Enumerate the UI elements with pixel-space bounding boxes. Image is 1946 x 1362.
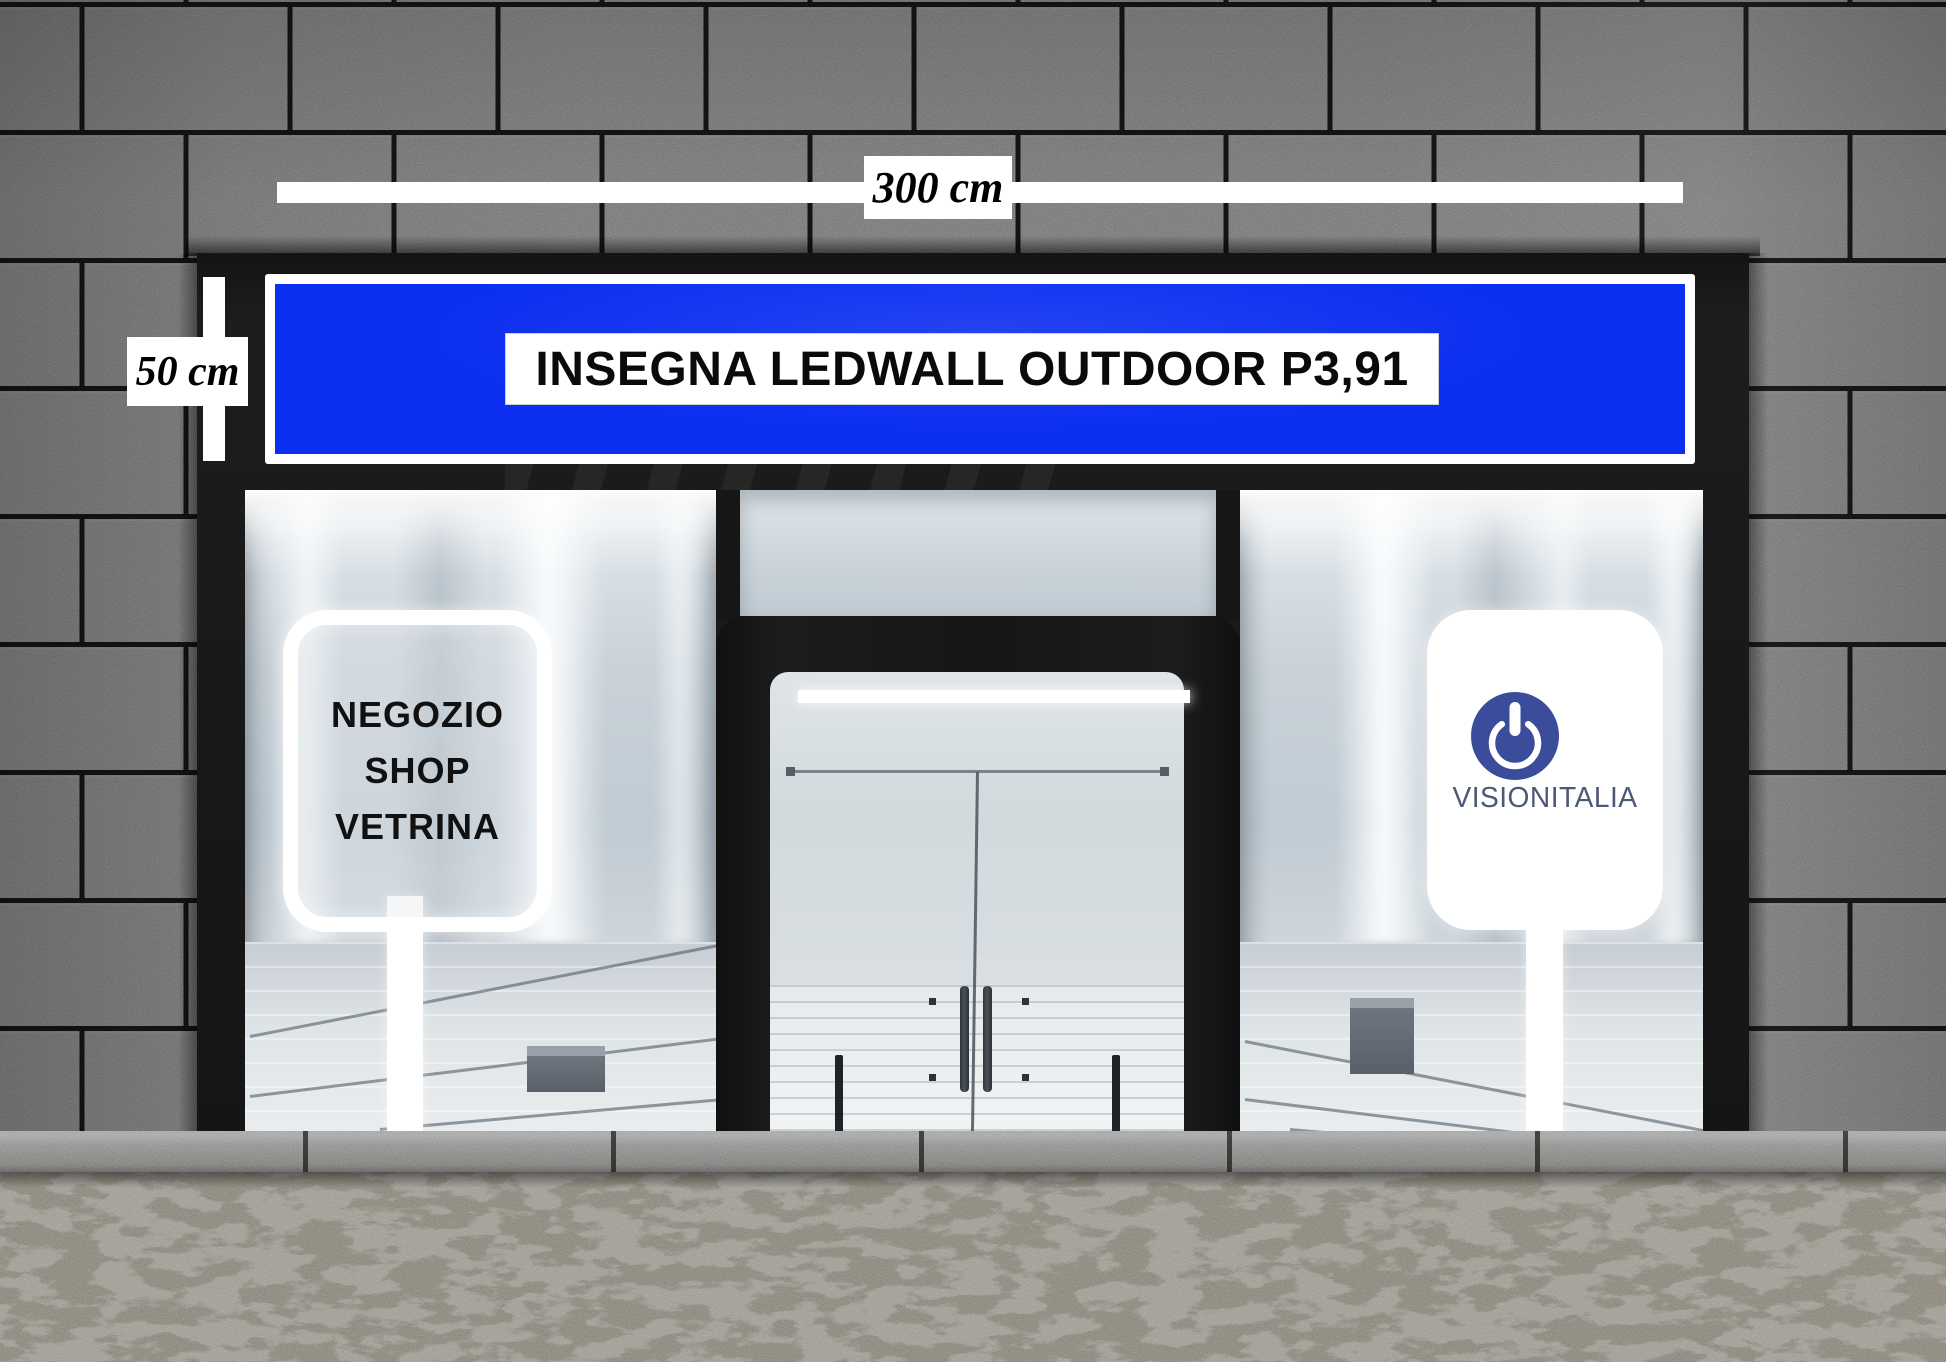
column-base [527, 1046, 605, 1092]
pavement-speckle [0, 1172, 1946, 1362]
handle-mount [1022, 1074, 1029, 1081]
sign-line-1: NEGOZIO [331, 687, 504, 743]
pavement-shadow [0, 1172, 1946, 1188]
ceiling-light-glow [1240, 490, 1703, 576]
handle-mount [929, 1074, 936, 1081]
sign-line-2: SHOP [364, 743, 470, 799]
window-mullion-right [1216, 490, 1240, 620]
facade-right-shadow [1749, 253, 1768, 1133]
column-base [1350, 998, 1414, 1074]
door-transom-glass [740, 490, 1216, 616]
glass-door-opening [770, 672, 1184, 1133]
right-sign-post [1526, 924, 1563, 1133]
door-rail-fitting [1160, 767, 1169, 776]
shop-window-sign: NEGOZIO SHOP VETRINA [283, 610, 552, 932]
ledwall-sign-label: INSEGNA LEDWALL OUTDOOR P3,91 [505, 333, 1439, 405]
door-stopper [835, 1055, 843, 1133]
window-mullion-left [716, 490, 740, 620]
brand-sign: VISIONITALIA [1427, 610, 1663, 930]
door-light-bar [798, 690, 1190, 703]
power-icon [1471, 692, 1559, 780]
ghost-lettering [505, 462, 1065, 492]
curb-speckle [0, 1131, 1946, 1173]
door-handle-left[interactable] [960, 986, 969, 1092]
ceiling-light-glow [245, 490, 716, 576]
width-measure-label: 300 cm [864, 156, 1012, 219]
handle-mount [1022, 998, 1029, 1005]
storefront-mockup: INSEGNA LEDWALL OUTDOOR P3,91 300 cm 50 … [0, 0, 1946, 1362]
door-rail-fitting [786, 767, 795, 776]
door-stopper [1112, 1055, 1120, 1133]
height-measure-label: 50 cm [127, 337, 248, 406]
power-icon-glyph [1471, 692, 1559, 780]
door-handle-right[interactable] [983, 986, 992, 1092]
sign-line-3: VETRINA [335, 799, 500, 855]
floor-through-door [770, 985, 1184, 1133]
interior-floor [1240, 942, 1703, 1133]
handle-mount [929, 998, 936, 1005]
brand-name: VISIONITALIA [1431, 782, 1660, 815]
